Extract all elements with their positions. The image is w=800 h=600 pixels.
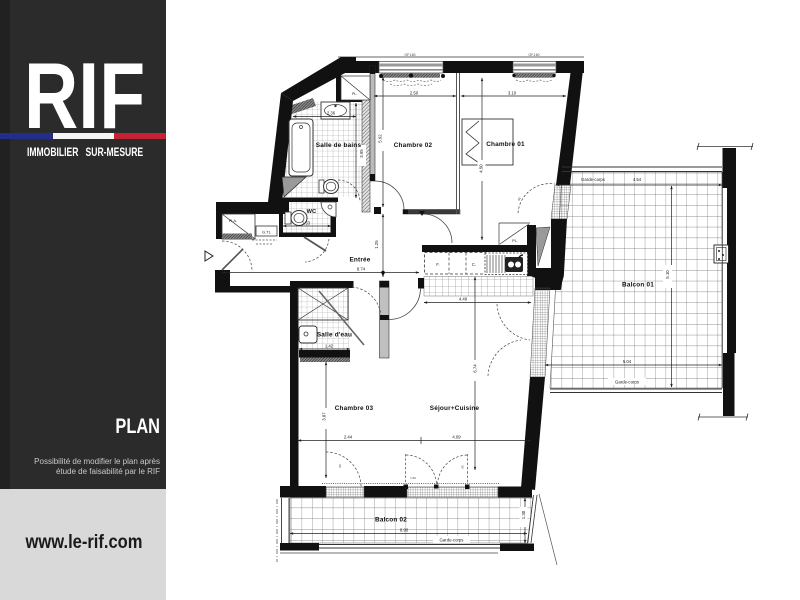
svg-text:1.30: 1.30 <box>521 510 526 519</box>
svg-text:8.90: 8.90 <box>400 528 409 533</box>
svg-text:Chambre 01: Chambre 01 <box>486 141 525 148</box>
svg-text:Garde-corps: Garde-corps <box>581 177 605 182</box>
svg-text:3.87: 3.87 <box>322 412 327 421</box>
svg-text:1.53: 1.53 <box>302 221 311 226</box>
svg-text:Salle d'eau: Salle d'eau <box>317 332 352 339</box>
svg-text:5.92: 5.92 <box>378 134 383 143</box>
svg-text:Balcon 01: Balcon 01 <box>622 282 654 289</box>
svg-text:4.49: 4.49 <box>459 297 468 302</box>
svg-text:1.42: 1.42 <box>325 344 334 349</box>
svg-text:Entrée: Entrée <box>349 257 370 264</box>
svg-text:80: 80 <box>338 464 342 468</box>
svg-text:4.50: 4.50 <box>479 164 484 173</box>
svg-text:1.25: 1.25 <box>374 240 379 249</box>
svg-text:90: 90 <box>461 465 465 469</box>
svg-text:2.50: 2.50 <box>410 91 419 96</box>
svg-text:3.95: 3.95 <box>359 149 364 158</box>
svg-text:Balcon 02: Balcon 02 <box>375 517 407 524</box>
svg-text:90: 90 <box>517 197 522 202</box>
svg-text:3.10: 3.10 <box>508 91 517 96</box>
svg-text:Salle de bains: Salle de bains <box>316 142 362 149</box>
svg-text:8.74: 8.74 <box>357 267 366 272</box>
svg-text:PL.: PL. <box>512 239 518 243</box>
svg-text:PLA.: PLA. <box>229 219 237 223</box>
svg-text:Chambre 03: Chambre 03 <box>335 405 374 412</box>
svg-text:OF.160: OF.160 <box>529 53 540 57</box>
svg-text:OF.160: OF.160 <box>405 53 416 57</box>
svg-text:1.60: 1.60 <box>410 476 416 480</box>
svg-text:WC: WC <box>307 209 317 215</box>
svg-text:C.: C. <box>472 262 477 267</box>
svg-text:PL.: PL. <box>352 92 357 96</box>
svg-text:Garde-corps: Garde-corps <box>440 538 464 543</box>
svg-text:2.44: 2.44 <box>344 435 353 440</box>
svg-text:4.54: 4.54 <box>633 177 642 182</box>
svg-text:4.09: 4.09 <box>452 435 461 440</box>
svg-text:2.36: 2.36 <box>327 111 336 116</box>
svg-text:G.TL: G.TL <box>262 230 272 235</box>
svg-text:6.74: 6.74 <box>473 364 478 373</box>
svg-text:F.: F. <box>436 262 440 267</box>
svg-text:Garde-corps: Garde-corps <box>615 380 639 385</box>
svg-text:Séjour+Cuisine: Séjour+Cuisine <box>430 405 480 412</box>
svg-text:Chambre 02: Chambre 02 <box>394 142 433 149</box>
svg-text:5.04: 5.04 <box>623 359 632 364</box>
svg-text:5.10: 5.10 <box>665 270 670 279</box>
